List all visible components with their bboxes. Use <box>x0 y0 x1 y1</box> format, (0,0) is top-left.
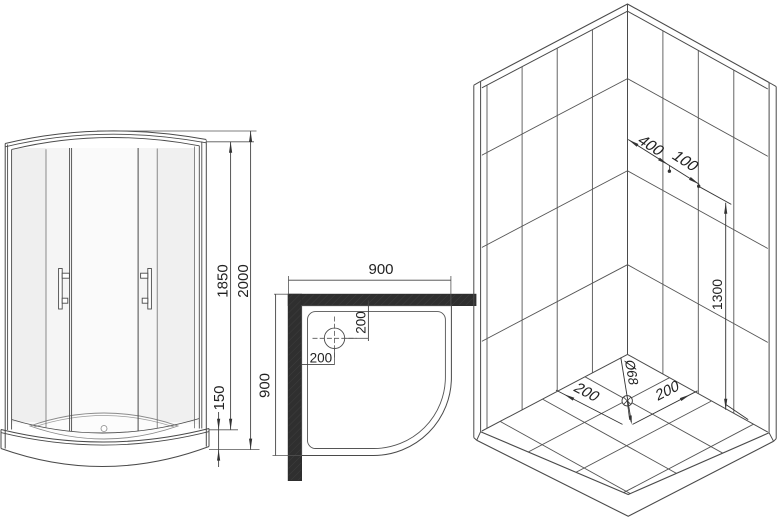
svg-text:1850: 1850 <box>215 264 232 297</box>
svg-text:1300: 1300 <box>709 279 725 310</box>
svg-text:2000: 2000 <box>235 264 252 297</box>
svg-text:900: 900 <box>368 261 393 278</box>
svg-text:200: 200 <box>353 311 368 334</box>
svg-text:150: 150 <box>211 385 228 410</box>
svg-text:200: 200 <box>310 351 333 366</box>
svg-text:900: 900 <box>257 373 274 398</box>
